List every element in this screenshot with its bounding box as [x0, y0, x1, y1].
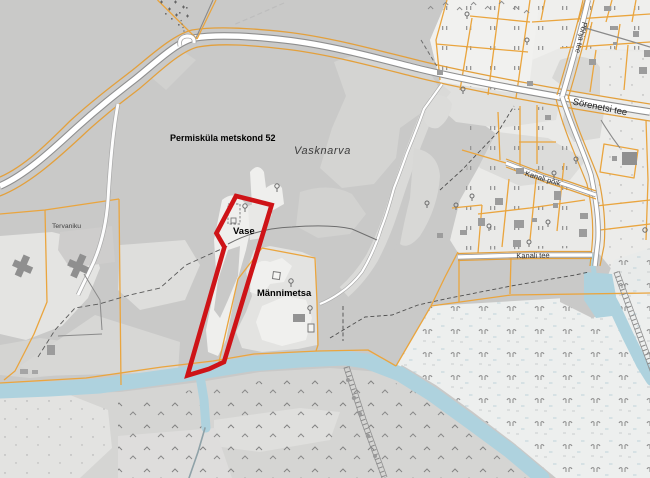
- svg-text:Vasknarva: Vasknarva: [294, 145, 351, 157]
- svg-text:Männimetsa: Männimetsa: [257, 287, 312, 298]
- svg-text:Kanali tee: Kanali tee: [516, 251, 550, 261]
- svg-text:Permisküla metskond 52: Permisküla metskond 52: [170, 133, 276, 143]
- svg-text:Tervaniku: Tervaniku: [52, 223, 81, 230]
- svg-text:Vase: Vase: [233, 226, 255, 237]
